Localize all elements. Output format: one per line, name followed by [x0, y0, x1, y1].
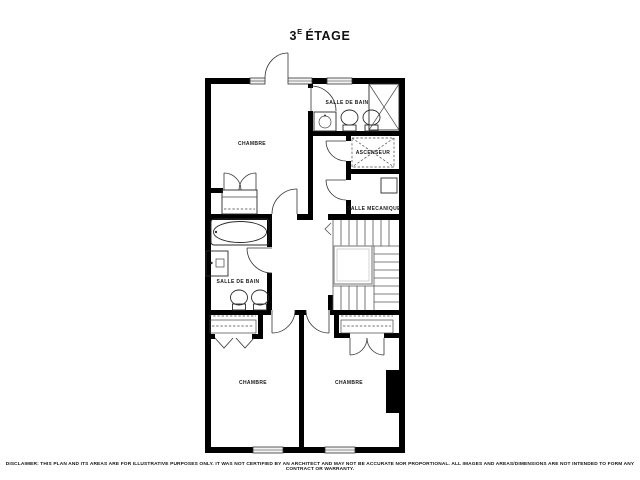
disclaimer-text: DISCLAIMER: THIS PLAN AND ITS AREAS ARE …	[0, 462, 640, 472]
floorplan-page: 3EÉTAGE	[0, 0, 640, 480]
staircase	[325, 220, 399, 310]
door-bathroom-middle	[247, 248, 272, 273]
bathroom-middle-fixtures	[206, 219, 269, 310]
window-bottom-left	[253, 447, 283, 453]
toilet	[341, 110, 358, 131]
room-label-ascenseur: ASCENSEUR	[356, 150, 391, 156]
chimney-shaft	[386, 370, 405, 413]
entry-door-top	[265, 53, 288, 78]
dresser	[222, 190, 257, 214]
bifold-door	[215, 338, 233, 348]
bifold-door	[236, 338, 254, 348]
door-mechanical-room	[326, 180, 346, 200]
door-bedroom-top	[272, 189, 297, 214]
stair-direction-arrow	[325, 223, 331, 235]
doors	[247, 53, 346, 333]
floorplan-drawing: CHAMBRE SALLE DE BAIN ASCENSEUR SALLE ME…	[0, 0, 640, 480]
room-label-salle-mecanique: SALLE MECANIQUE	[347, 206, 401, 212]
window-bottom-right	[325, 447, 355, 453]
room-label-chambre-bottom-left: CHAMBRE	[239, 380, 267, 386]
stair-void	[334, 246, 372, 284]
door-bathroom-top	[311, 86, 336, 111]
room-label-chambre-top: CHAMBRE	[238, 141, 266, 147]
toilet	[231, 290, 248, 310]
shower	[369, 84, 399, 130]
room-label-chambre-bottom-right: CHAMBRE	[335, 380, 363, 386]
closet-top-bedroom	[222, 173, 257, 214]
interior-walls	[205, 84, 405, 453]
room-label-salle-de-bain-top: SALLE DE BAIN	[326, 100, 369, 106]
toilet	[363, 110, 380, 131]
closet-bottom-left	[209, 316, 256, 348]
window-top-left	[250, 78, 265, 84]
door-bedroom-bottom-right	[306, 310, 329, 333]
bathtub	[211, 219, 269, 245]
door-elevator	[326, 141, 346, 161]
toilet	[252, 290, 269, 310]
window-top-middle	[288, 78, 312, 84]
window-top-right	[327, 78, 352, 84]
room-label-salle-de-bain-middle: SALLE DE BAIN	[217, 279, 260, 285]
mechanical-equipment	[381, 178, 397, 193]
door-bedroom-bottom-left	[272, 310, 295, 333]
sink	[314, 112, 336, 131]
